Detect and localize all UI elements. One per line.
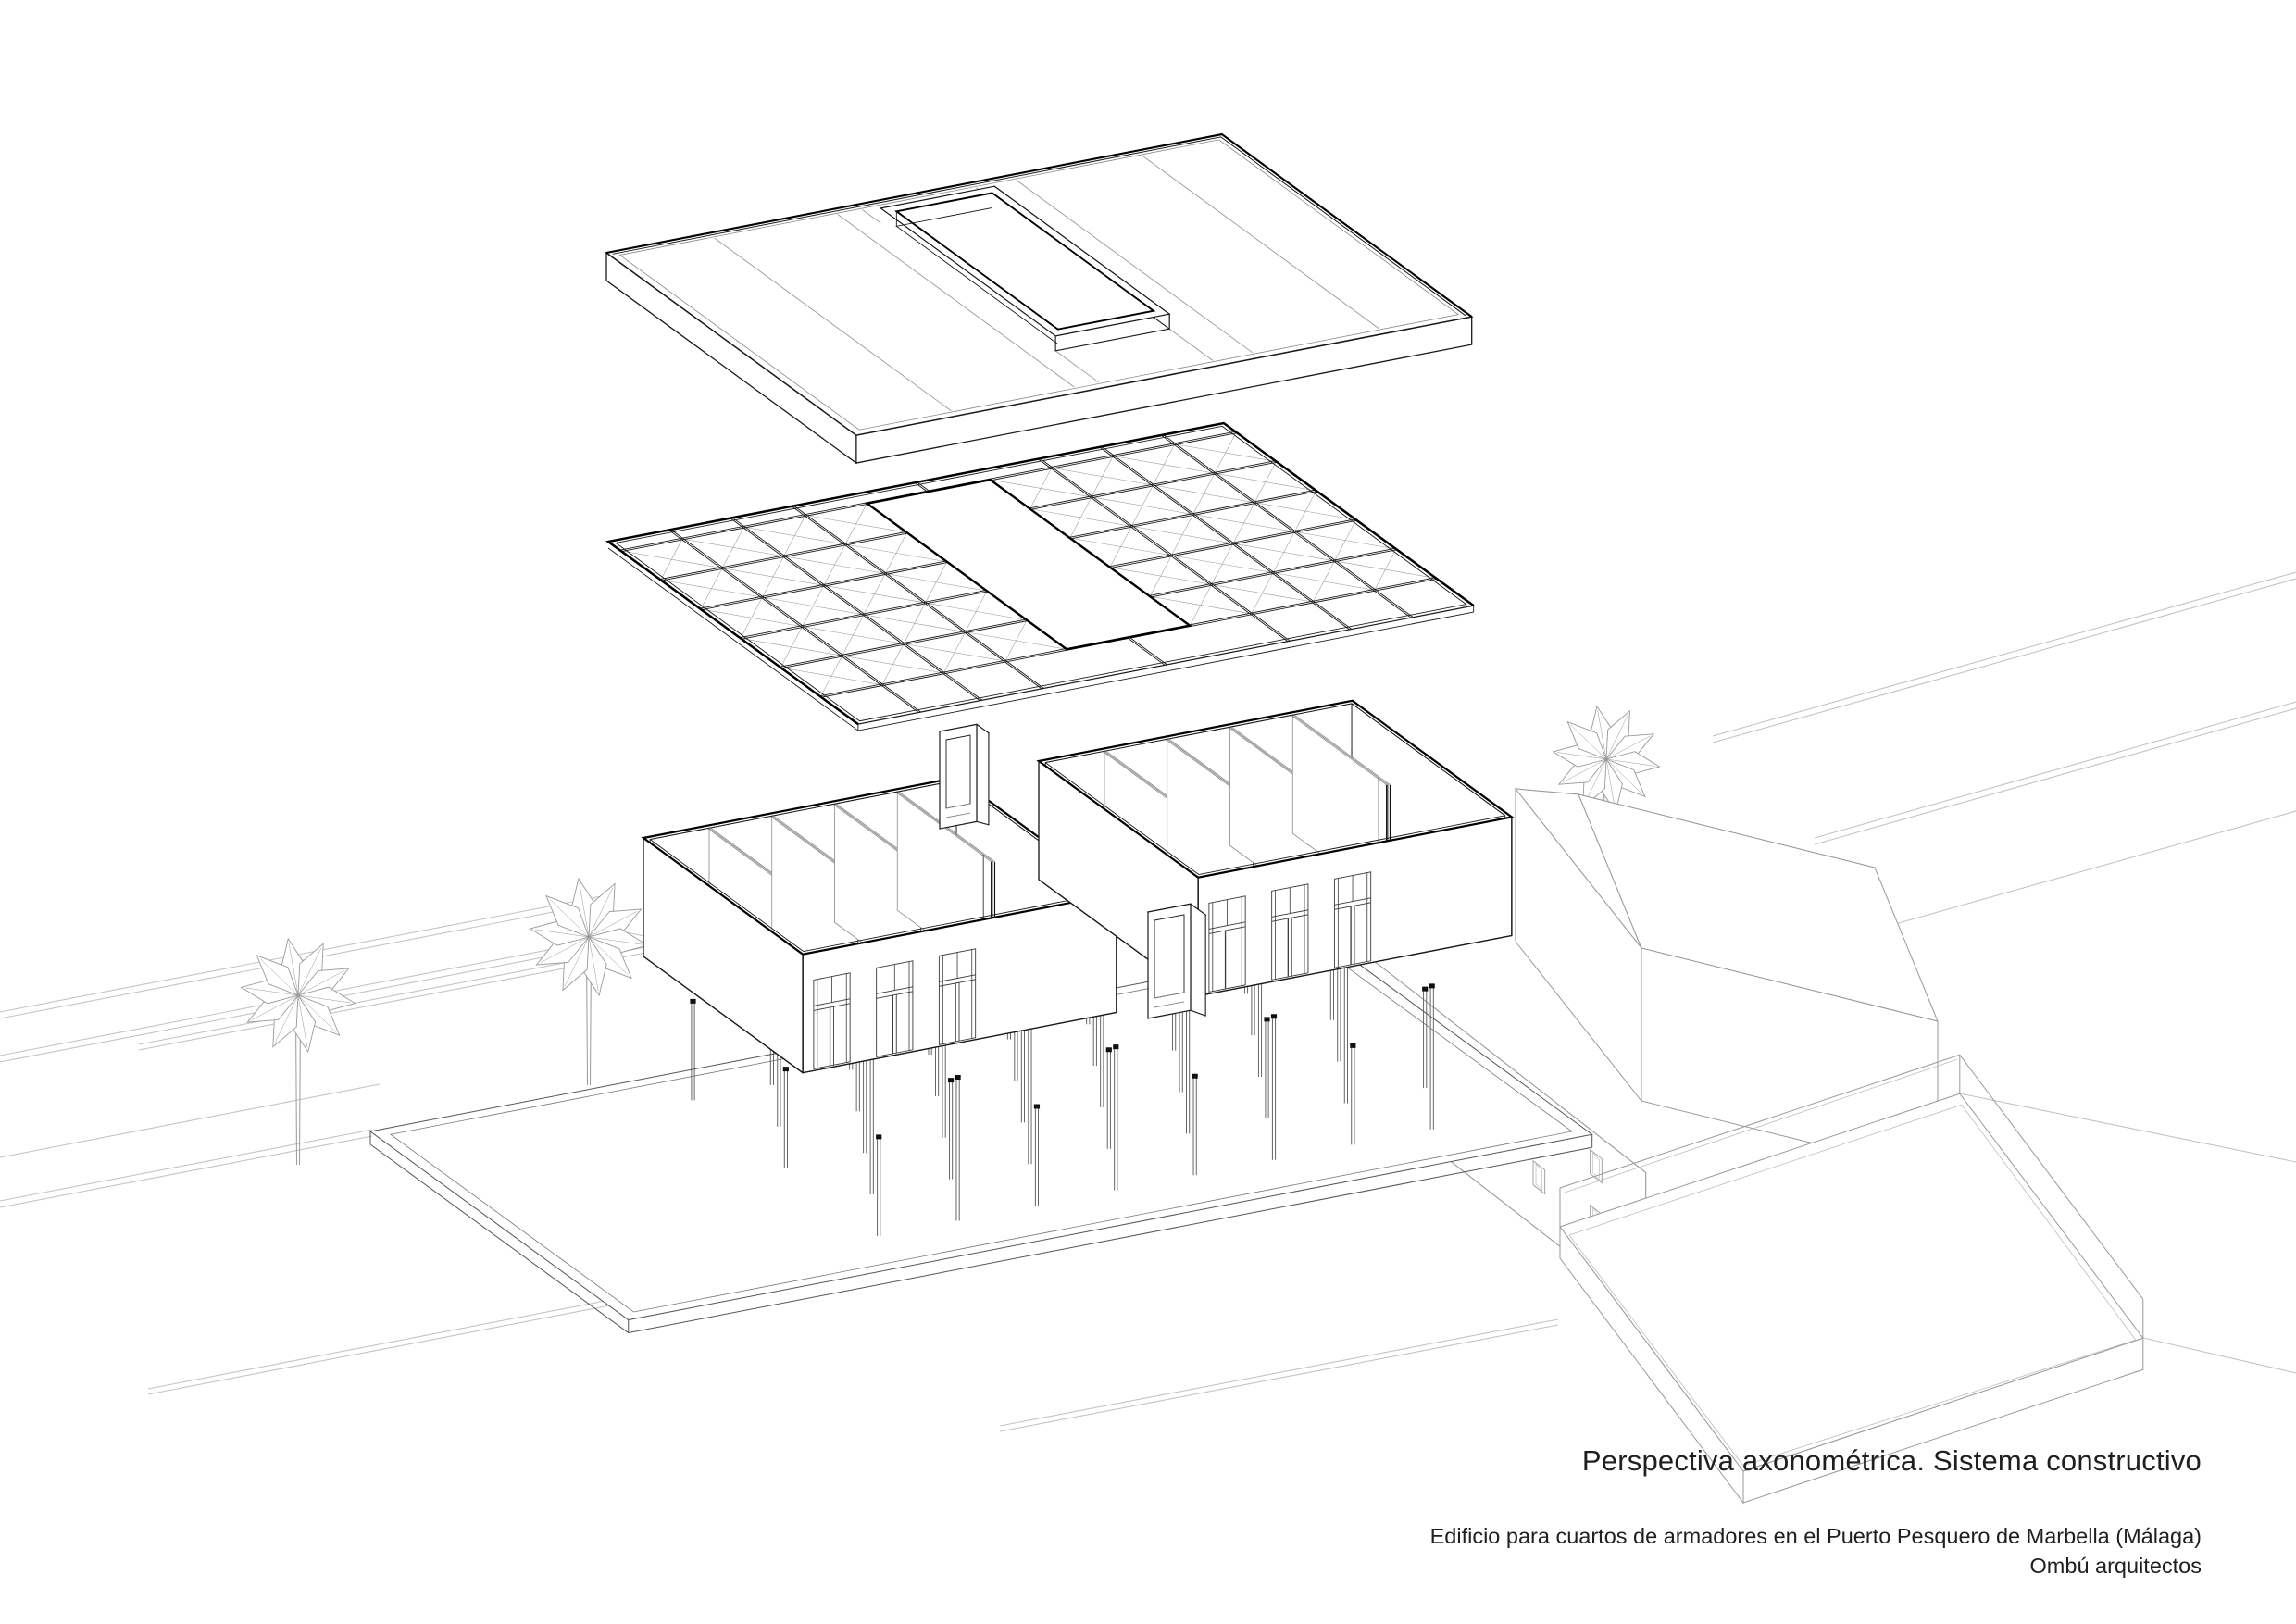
road-line — [1713, 579, 2296, 743]
grid-brace — [1110, 526, 1131, 567]
portal-side — [1191, 904, 1205, 1016]
pile-cap — [948, 1079, 953, 1082]
drawing-title: Perspectiva axonométrica. Sistema constr… — [1430, 1444, 2202, 1478]
grid-brace — [803, 585, 824, 626]
palm-tree — [242, 939, 356, 1165]
grid-brace — [741, 597, 762, 638]
pile-cap — [1271, 1015, 1276, 1018]
grid-brace — [1254, 461, 1276, 502]
grid-brace — [784, 515, 805, 556]
pile-cap — [1192, 1074, 1197, 1078]
grid-beam — [1038, 459, 1288, 642]
pile-cap — [1106, 1048, 1111, 1052]
grid-beam — [1100, 447, 1350, 630]
grid-beam — [702, 562, 948, 609]
drawing-sheet: Perspectiva axonométrica. Sistema constr… — [0, 0, 2296, 1624]
grid-beam — [1111, 520, 1357, 568]
grid-brace — [820, 656, 842, 696]
grid-beam — [1151, 550, 1397, 597]
grid-brace — [1273, 531, 1294, 572]
roof-structural-grid — [608, 423, 1474, 731]
title-block: Perspectiva axonométrica. Sistema constr… — [1430, 1444, 2202, 1580]
grid-brace — [1131, 485, 1153, 526]
axonometric-drawing — [0, 0, 2296, 1624]
road-line — [148, 1298, 648, 1394]
roof-slab — [606, 134, 1472, 463]
grid-beam — [662, 533, 908, 581]
grid-brace — [1252, 573, 1273, 614]
grid-beam — [1161, 435, 1411, 618]
road-line — [1815, 708, 2296, 844]
grid-brace — [925, 562, 946, 603]
road-line — [1815, 702, 2296, 838]
grid-brace — [1171, 515, 1192, 556]
grid-brace — [1313, 561, 1334, 602]
grid-beam — [794, 506, 1044, 688]
grid-beam — [1069, 490, 1316, 537]
architect-name: Ombú arquitectos — [1430, 1551, 2202, 1580]
grid-beam — [780, 619, 1026, 667]
grid-brace — [845, 504, 867, 544]
grid-perimeter-heavy — [608, 423, 1474, 724]
grid-brace — [904, 603, 925, 643]
grid-brace — [1215, 432, 1236, 473]
grid-beam — [732, 518, 982, 700]
grid-beam — [730, 518, 980, 701]
pile-cap — [955, 1075, 960, 1079]
grid-opening — [867, 480, 1190, 649]
pile-cap — [1114, 1045, 1118, 1049]
pile-cap — [877, 1135, 881, 1139]
grid-beam — [1164, 435, 1414, 618]
grid-beam — [792, 506, 1042, 689]
grid-beam — [1128, 638, 1165, 666]
grid-brace — [1070, 497, 1092, 538]
grid-brace — [882, 643, 904, 684]
grid-beam — [1071, 492, 1317, 539]
platform-top — [1560, 1093, 2143, 1471]
grid-beam — [1149, 548, 1395, 595]
grid-beam — [1129, 637, 1167, 665]
door-portal — [940, 724, 989, 829]
grid-brace — [943, 632, 965, 673]
road-line — [148, 1293, 648, 1389]
grid-beam — [1031, 462, 1278, 509]
grid-brace — [1005, 620, 1027, 661]
grid-beam — [1041, 458, 1291, 641]
grid-beam — [660, 531, 906, 579]
grid-brace — [1294, 491, 1316, 531]
grid-beam — [1029, 461, 1276, 508]
warehouse-building — [1516, 789, 1938, 1174]
pile-cap — [1034, 1105, 1039, 1108]
road-line — [1960, 1093, 2296, 1162]
grid-brace — [1375, 549, 1396, 590]
grid-brace — [780, 627, 802, 668]
grid-brace — [824, 544, 845, 585]
pile-cap — [783, 1068, 788, 1071]
grid-beam — [668, 530, 918, 712]
road-line — [1889, 811, 2296, 926]
grid-brace — [1212, 543, 1233, 584]
door-portal — [1148, 904, 1205, 1018]
road-line — [1000, 1319, 1558, 1426]
grid-perimeter — [608, 423, 1474, 724]
grid-brace — [1193, 473, 1215, 514]
grid-brace — [1150, 556, 1171, 596]
grid-brace — [1154, 444, 1175, 485]
grid-brace — [701, 568, 722, 609]
palm-tree — [530, 879, 648, 1085]
road-line — [2143, 1338, 2296, 1373]
grid-brace — [762, 556, 783, 597]
project-subtitle: Edificio para cuartos de armadores en el… — [1430, 1521, 2202, 1551]
grid-brace — [842, 615, 864, 656]
grid-brace — [1092, 456, 1113, 496]
grid-beam — [742, 592, 988, 639]
grid-beam — [700, 561, 946, 608]
grid-brace — [661, 539, 682, 580]
grid-beam — [740, 591, 986, 638]
road-line — [1000, 1325, 1558, 1431]
portal-front — [940, 724, 977, 829]
portal-side — [977, 724, 989, 824]
grid-brace — [966, 591, 987, 631]
pile-cap — [1429, 984, 1434, 988]
pile-cap — [1423, 987, 1428, 991]
grid-beam — [781, 621, 1028, 668]
grid-brace — [1335, 519, 1356, 560]
grid-brace — [1233, 503, 1254, 543]
grid-beam — [1102, 446, 1352, 629]
road-line — [1713, 572, 2296, 736]
grid-brace — [1190, 584, 1211, 625]
grid-beam — [1109, 519, 1355, 567]
pile-cap — [1351, 1043, 1355, 1047]
road-line — [0, 1084, 380, 1157]
grid-brace — [722, 527, 743, 568]
pile-cap — [691, 999, 695, 1003]
pile-cap — [1265, 1018, 1269, 1021]
road-line — [0, 1130, 372, 1201]
grid-brace — [885, 532, 906, 573]
grid-brace — [864, 574, 885, 615]
grid-brace — [1030, 468, 1052, 508]
